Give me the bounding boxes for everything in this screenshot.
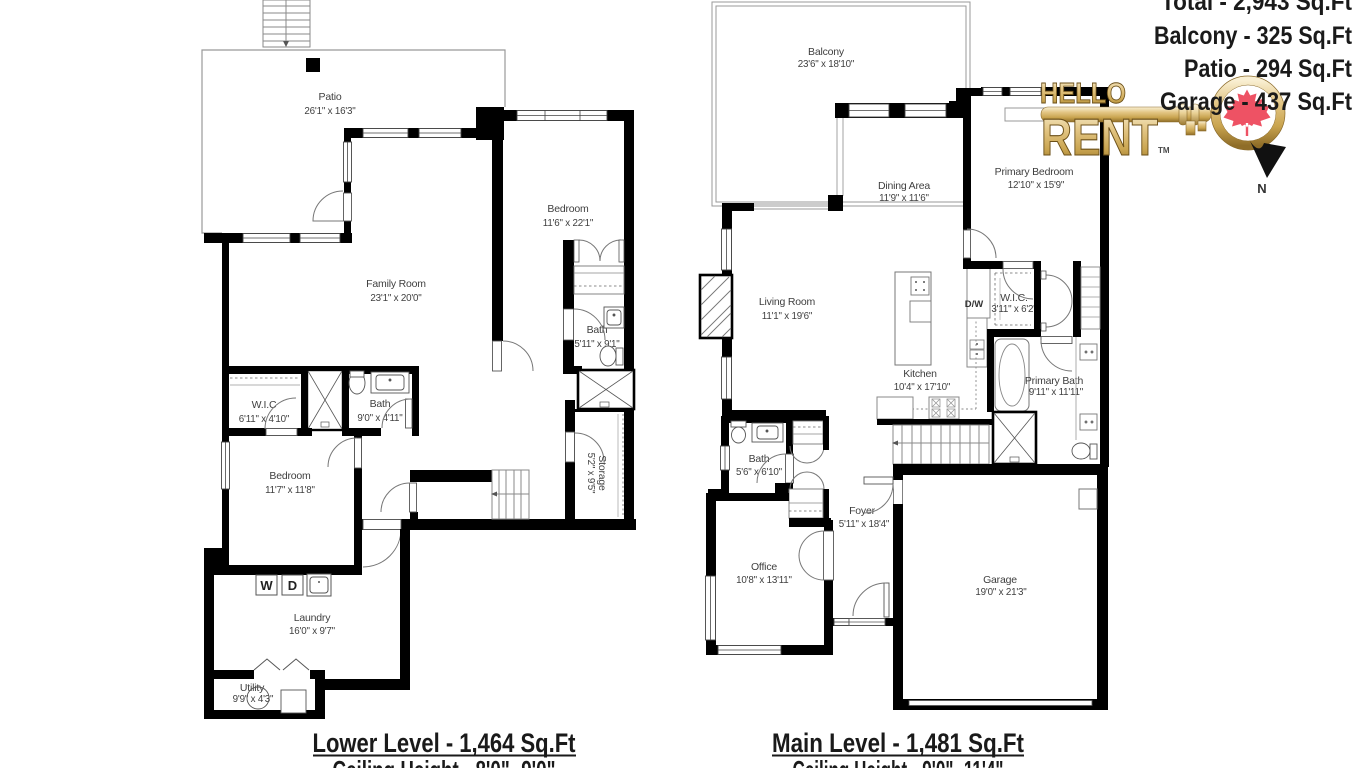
svg-text:6'11" x 4'10": 6'11" x 4'10" — [239, 414, 290, 425]
svg-text:10'8" x 13'11": 10'8" x 13'11" — [736, 575, 792, 586]
svg-text:Primary Bedroom: Primary Bedroom — [995, 166, 1074, 178]
svg-text:D: D — [288, 578, 297, 593]
svg-text:Total - 2,943 Sq.Ft: Total - 2,943 Sq.Ft — [1161, 0, 1353, 16]
svg-text:Kitchen: Kitchen — [903, 368, 937, 380]
svg-text:19'0" x 21'3": 19'0" x 21'3" — [975, 587, 1027, 598]
svg-text:Patio: Patio — [319, 91, 342, 103]
svg-text:Bedroom: Bedroom — [269, 470, 311, 482]
svg-text:9'11" x 11'11": 9'11" x 11'11" — [1029, 387, 1084, 398]
svg-text:11'6" x 22'1": 11'6" x 22'1" — [543, 218, 594, 229]
svg-text:W.I.C.: W.I.C. — [1000, 292, 1027, 304]
svg-text:D/W: D/W — [965, 299, 984, 310]
svg-text:Patio - 294 Sq.Ft: Patio - 294 Sq.Ft — [1184, 55, 1353, 83]
svg-text:Primary Bath: Primary Bath — [1025, 375, 1084, 387]
svg-text:Lower Level - 1,464 Sq.Ft: Lower Level - 1,464 Sq.Ft — [313, 728, 576, 758]
svg-text:Garage - 437 Sq.Ft: Garage - 437 Sq.Ft — [1160, 88, 1353, 116]
svg-text:26'1" x 16'3": 26'1" x 16'3" — [304, 106, 356, 117]
svg-text:Main Level - 1,481 Sq.Ft: Main Level - 1,481 Sq.Ft — [772, 728, 1024, 758]
svg-text:Balcony: Balcony — [808, 46, 845, 58]
svg-text:Bath: Bath — [370, 398, 391, 410]
svg-text:TM: TM — [1158, 146, 1170, 155]
svg-text:23'6" x 18'10": 23'6" x 18'10" — [798, 59, 855, 70]
svg-text:Storage: Storage — [596, 455, 608, 491]
svg-text:Dining Area: Dining Area — [878, 180, 930, 192]
svg-text:Family Room: Family Room — [366, 278, 426, 290]
svg-text:HELLO: HELLO — [1040, 78, 1126, 110]
svg-text:N: N — [1257, 181, 1266, 196]
svg-text:12'10" x 15'9": 12'10" x 15'9" — [1008, 180, 1065, 191]
svg-text:11'9" x 11'6": 11'9" x 11'6" — [879, 193, 929, 204]
svg-text:Ceiling Height - 9'0"- 11'4": Ceiling Height - 9'0"- 11'4" — [793, 755, 1004, 768]
svg-text:11'7" x 11'8": 11'7" x 11'8" — [265, 485, 315, 496]
svg-text:9'0" x 4'11": 9'0" x 4'11" — [357, 413, 403, 424]
svg-text:10'4" x 17'10": 10'4" x 17'10" — [894, 382, 951, 393]
svg-text:Balcony - 325 Sq.Ft: Balcony - 325 Sq.Ft — [1154, 22, 1353, 50]
svg-text:Office: Office — [751, 561, 777, 573]
svg-text:W: W — [260, 578, 273, 593]
svg-text:Garage: Garage — [983, 574, 1017, 586]
svg-text:RENT: RENT — [1041, 109, 1158, 167]
svg-text:23'1" x 20'0": 23'1" x 20'0" — [370, 293, 422, 304]
svg-text:5'11" x 18'4": 5'11" x 18'4" — [839, 519, 890, 530]
svg-text:5'2" x 9'5": 5'2" x 9'5" — [585, 453, 596, 494]
svg-text:3'11" x 6'2": 3'11" x 6'2" — [991, 304, 1037, 315]
svg-text:16'0" x 9'7": 16'0" x 9'7" — [289, 626, 336, 637]
svg-text:Laundry: Laundry — [294, 612, 331, 624]
svg-text:Ceiling Height - 8'0"- 9'0": Ceiling Height - 8'0"- 9'0" — [333, 755, 556, 768]
svg-text:Bedroom: Bedroom — [547, 203, 589, 215]
svg-text:Foyer: Foyer — [849, 505, 876, 517]
svg-text:11'1" x 19'6": 11'1" x 19'6" — [762, 311, 813, 322]
svg-text:Living Room: Living Room — [759, 296, 816, 308]
svg-text:W.I.C: W.I.C — [252, 399, 277, 411]
svg-text:Bath: Bath — [749, 453, 770, 465]
